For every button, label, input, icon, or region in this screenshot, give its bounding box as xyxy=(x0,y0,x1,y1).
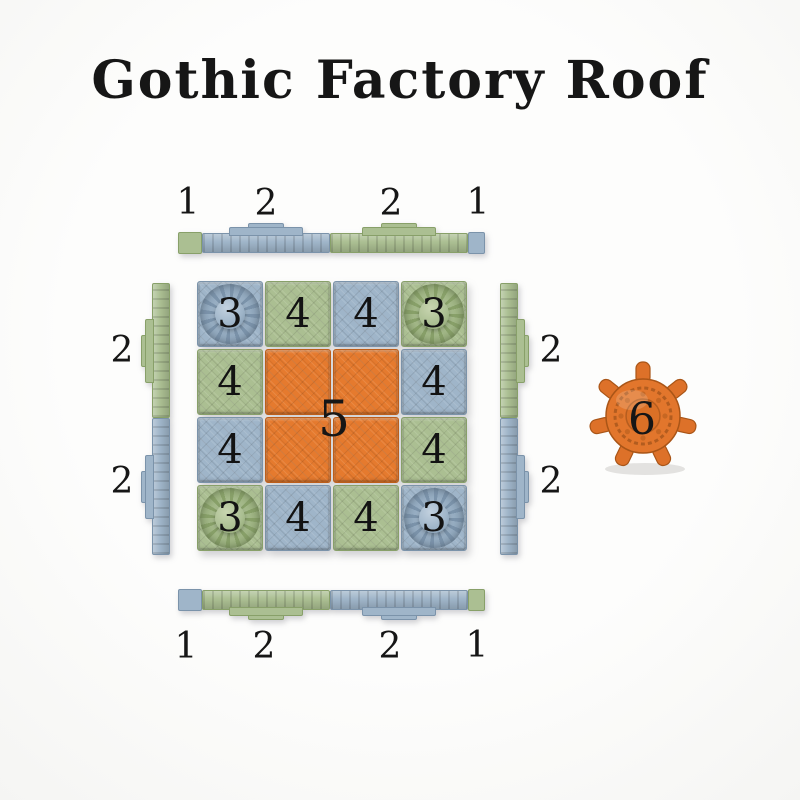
trim-long-piece xyxy=(152,283,170,418)
trim-bar-right xyxy=(500,283,518,555)
roof-tile-dome-vent: 3 xyxy=(401,485,467,551)
roof-tile: 4 xyxy=(401,349,467,415)
trim-long-piece xyxy=(202,590,330,610)
roof-tile-dome-vent: 3 xyxy=(197,485,263,551)
trim-long-piece xyxy=(202,233,330,253)
trim-long-piece xyxy=(330,590,468,610)
trim-long-piece xyxy=(152,418,170,555)
piece-number-label: 3 xyxy=(402,486,466,550)
trim-bar-bottom xyxy=(178,590,485,610)
piece-number-label: 2 xyxy=(540,333,563,369)
piece-number-label: 4 xyxy=(402,418,466,482)
roof-tile: 4 xyxy=(333,485,399,551)
trim-end-cap xyxy=(468,232,485,254)
piece-number-label: 4 xyxy=(198,418,262,482)
piece-number-label: 2 xyxy=(255,186,278,222)
trim-end-cap xyxy=(178,589,202,611)
piece-number-label-wheel: 6 xyxy=(628,398,656,442)
piece-number-label: 3 xyxy=(198,282,262,346)
trim-end-cap xyxy=(468,589,485,611)
roof-tile: 4 xyxy=(401,417,467,483)
roof-tile: 4 xyxy=(197,417,263,483)
piece-number-label: 4 xyxy=(198,350,262,414)
roof-tile: 4 xyxy=(197,349,263,415)
roof-tile: 4 xyxy=(265,281,331,347)
roof-tile-dome-vent: 3 xyxy=(197,281,263,347)
piece-number-label: 1 xyxy=(466,628,489,664)
piece-number-label: 1 xyxy=(175,629,198,665)
piece-number-label: 3 xyxy=(198,486,262,550)
piece-number-label: 1 xyxy=(467,185,490,221)
assembly-diagram-canvas: Gothic Factory Roof 1 2 2 1 2 2 2 2 3 4 … xyxy=(0,0,800,800)
trim-long-piece xyxy=(500,418,518,555)
piece-number-label: 4 xyxy=(402,350,466,414)
trim-bar-left xyxy=(152,283,170,555)
trim-long-piece xyxy=(500,283,518,418)
piece-number-label: 4 xyxy=(266,282,330,346)
piece-number-label: 2 xyxy=(379,629,402,665)
roof-tile: 4 xyxy=(333,281,399,347)
piece-number-label: 2 xyxy=(111,464,134,500)
page-title: Gothic Factory Roof xyxy=(0,50,800,111)
piece-number-label: 1 xyxy=(177,185,200,221)
piece-number-label: 2 xyxy=(111,333,134,369)
trim-end-cap xyxy=(178,232,202,254)
piece-number-label: 4 xyxy=(334,282,398,346)
trim-long-piece xyxy=(330,233,468,253)
piece-number-label-center: 5 xyxy=(318,394,350,444)
roof-tile: 4 xyxy=(265,485,331,551)
piece-number-label: 4 xyxy=(334,486,398,550)
piece-number-label: 2 xyxy=(253,629,276,665)
piece-number-label: 2 xyxy=(540,464,563,500)
roof-tile-dome-vent: 3 xyxy=(401,281,467,347)
piece-number-label: 2 xyxy=(380,186,403,222)
piece-number-label: 3 xyxy=(402,282,466,346)
trim-bar-top xyxy=(178,233,485,253)
piece-number-label: 4 xyxy=(266,486,330,550)
